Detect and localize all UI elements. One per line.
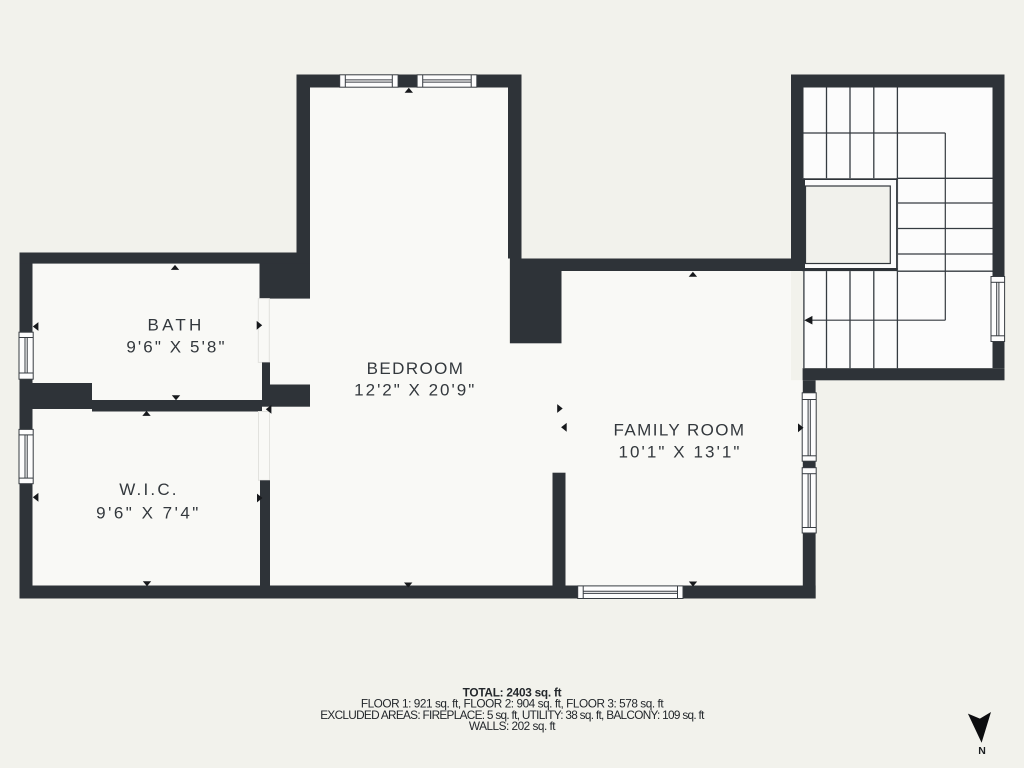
svg-text:BEDROOM: BEDROOM	[367, 359, 465, 378]
svg-text:10'1" X 13'1": 10'1" X 13'1"	[618, 442, 741, 461]
svg-text:BATH: BATH	[148, 316, 205, 335]
svg-text:9'6" X 5'8": 9'6" X 5'8"	[126, 338, 226, 357]
svg-text:WALLS: 202 sq. ft: WALLS: 202 sq. ft	[469, 719, 556, 733]
svg-text:W.I.C.: W.I.C.	[119, 480, 178, 499]
svg-text:N: N	[978, 745, 986, 757]
svg-text:9'6" X 7'4": 9'6" X 7'4"	[96, 504, 201, 523]
svg-text:12'2" X 20'9": 12'2" X 20'9"	[354, 381, 476, 400]
svg-text:FAMILY ROOM: FAMILY ROOM	[614, 420, 746, 439]
